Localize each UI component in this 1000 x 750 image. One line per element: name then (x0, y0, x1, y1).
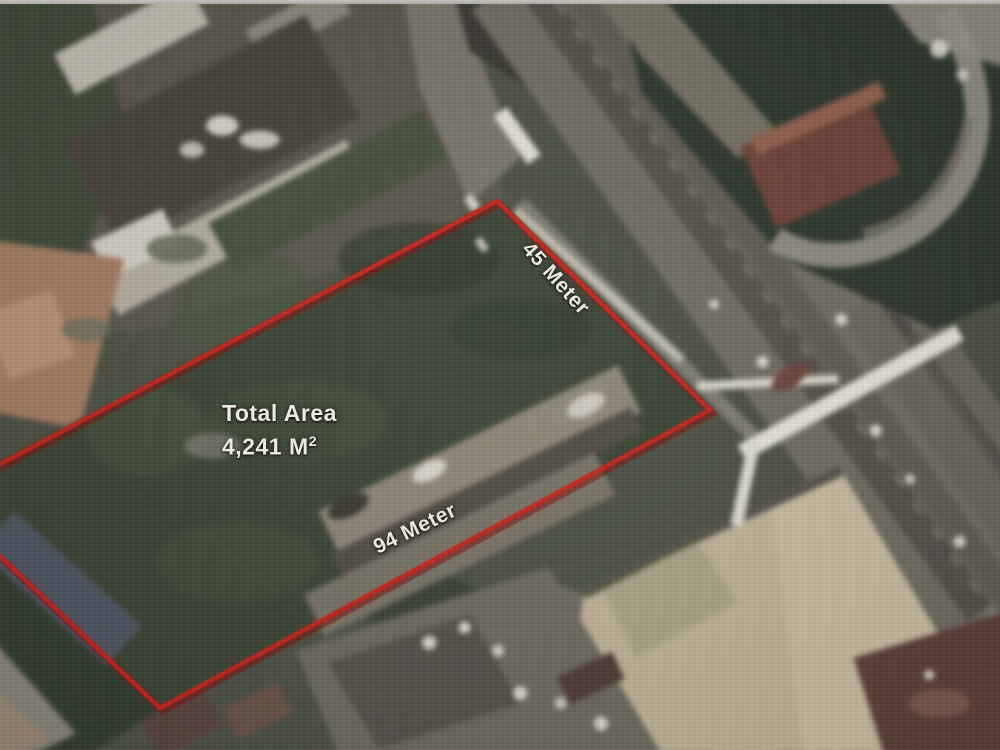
parcel-boundary (0, 0, 1000, 750)
total-area-value: 4,241 M2 (222, 428, 337, 462)
parcel-boundary-shadow (0, 204, 713, 711)
parcel-boundary-line (0, 201, 710, 708)
top-edge-strip (0, 0, 1000, 4)
total-area-title: Total Area (222, 399, 337, 428)
total-area-callout: Total Area 4,241 M2 (222, 399, 337, 462)
total-area-exponent: 2 (309, 434, 317, 450)
annotated-satellite-map: Total Area 4,241 M2 45 Meter 94 Meter (0, 0, 1000, 750)
